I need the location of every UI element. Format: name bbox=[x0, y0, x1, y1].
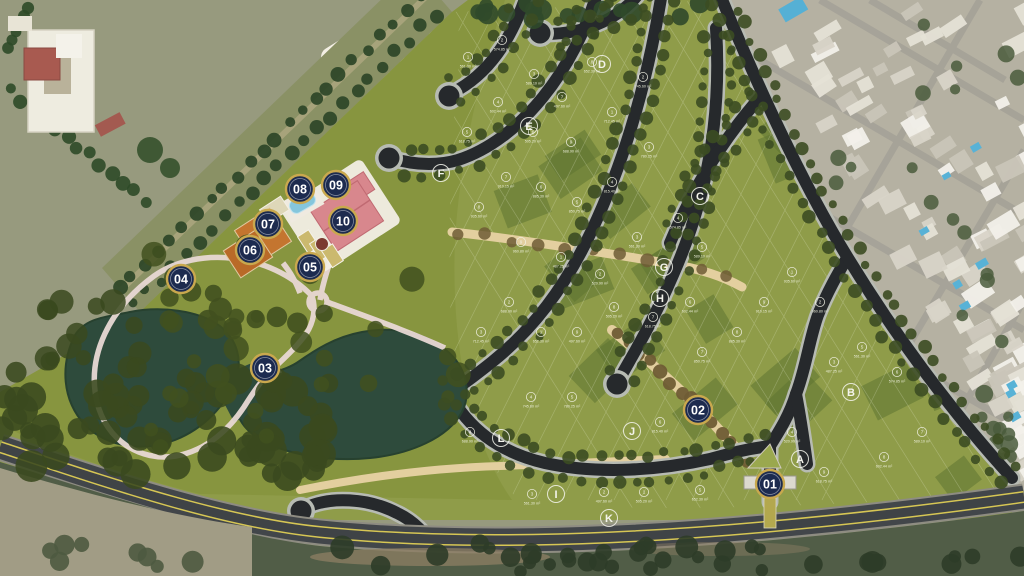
map-marker-07[interactable]: 07 bbox=[254, 210, 282, 238]
svg-text:3: 3 bbox=[833, 360, 836, 365]
svg-text:06: 06 bbox=[243, 244, 257, 258]
svg-text:4: 4 bbox=[497, 100, 500, 105]
map-marker-08[interactable]: 08 bbox=[286, 175, 314, 203]
svg-text:688.90 m²: 688.90 m² bbox=[462, 440, 479, 444]
svg-text:3: 3 bbox=[533, 72, 536, 77]
svg-text:03: 03 bbox=[258, 362, 272, 376]
svg-text:J: J bbox=[629, 426, 635, 438]
svg-text:520.90 m²: 520.90 m² bbox=[784, 440, 801, 444]
svg-text:1: 1 bbox=[643, 490, 646, 495]
svg-text:6: 6 bbox=[689, 300, 692, 305]
svg-text:505.20 m²: 505.20 m² bbox=[636, 500, 653, 504]
svg-text:487.25 m²: 487.25 m² bbox=[553, 265, 570, 269]
svg-text:01: 01 bbox=[763, 478, 777, 492]
svg-text:487.25 m²: 487.25 m² bbox=[826, 370, 843, 374]
svg-text:7: 7 bbox=[652, 315, 655, 320]
svg-text:850.75 m²: 850.75 m² bbox=[694, 360, 711, 364]
svg-text:935.60 m²: 935.60 m² bbox=[784, 280, 801, 284]
map-marker-04[interactable]: 04 bbox=[167, 265, 195, 293]
svg-text:1: 1 bbox=[791, 270, 794, 275]
svg-text:04: 04 bbox=[174, 273, 188, 287]
map-marker-06[interactable]: 06 bbox=[236, 236, 264, 264]
svg-text:885.30 m²: 885.30 m² bbox=[729, 340, 746, 344]
svg-text:2: 2 bbox=[819, 300, 822, 305]
svg-text:F: F bbox=[438, 168, 445, 180]
svg-text:7: 7 bbox=[505, 175, 508, 180]
svg-text:2: 2 bbox=[508, 300, 511, 305]
svg-text:561.30 m²: 561.30 m² bbox=[460, 65, 477, 69]
svg-text:602.44 m²: 602.44 m² bbox=[876, 465, 893, 469]
svg-text:5: 5 bbox=[466, 130, 469, 135]
svg-text:4: 4 bbox=[530, 395, 533, 400]
svg-text:D: D bbox=[598, 59, 606, 71]
svg-text:7: 7 bbox=[561, 95, 564, 100]
svg-text:6: 6 bbox=[540, 185, 543, 190]
map-marker-02[interactable]: 02 bbox=[684, 396, 712, 424]
svg-text:2: 2 bbox=[599, 272, 602, 277]
svg-text:935.60 m²: 935.60 m² bbox=[471, 215, 488, 219]
svg-text:8: 8 bbox=[478, 205, 481, 210]
svg-text:C: C bbox=[696, 191, 704, 203]
svg-text:618.75 m²: 618.75 m² bbox=[645, 325, 662, 329]
map-marker-05[interactable]: 05 bbox=[296, 253, 324, 281]
svg-text:910.15 m²: 910.15 m² bbox=[498, 185, 515, 189]
svg-text:688.90 m²: 688.90 m² bbox=[563, 150, 580, 154]
svg-text:960.80 m²: 960.80 m² bbox=[513, 250, 530, 254]
svg-text:960.80 m²: 960.80 m² bbox=[812, 310, 829, 314]
svg-text:05: 05 bbox=[303, 261, 317, 275]
svg-text:2: 2 bbox=[603, 490, 606, 495]
svg-text:3: 3 bbox=[531, 492, 534, 497]
svg-text:10: 10 bbox=[336, 215, 350, 229]
svg-text:589.10 m²: 589.10 m² bbox=[914, 440, 931, 444]
svg-text:5: 5 bbox=[699, 488, 702, 493]
svg-text:3: 3 bbox=[636, 235, 639, 240]
svg-text:9: 9 bbox=[570, 140, 573, 145]
svg-text:780.25 m²: 780.25 m² bbox=[641, 155, 658, 159]
svg-text:07: 07 bbox=[261, 218, 275, 232]
svg-text:589.10 m²: 589.10 m² bbox=[526, 82, 543, 86]
svg-text:497.60 m²: 497.60 m² bbox=[569, 340, 586, 344]
svg-text:3: 3 bbox=[480, 330, 483, 335]
svg-text:497.60 m²: 497.60 m² bbox=[554, 105, 571, 109]
svg-text:E: E bbox=[525, 121, 532, 133]
svg-text:712.45 m²: 712.45 m² bbox=[604, 120, 621, 124]
svg-text:7: 7 bbox=[921, 430, 924, 435]
svg-text:3: 3 bbox=[648, 145, 651, 150]
svg-text:1: 1 bbox=[560, 255, 563, 260]
svg-text:I: I bbox=[554, 489, 557, 501]
svg-text:08: 08 bbox=[293, 183, 307, 197]
svg-text:602.44 m²: 602.44 m² bbox=[682, 310, 699, 314]
svg-text:618.75 m²: 618.75 m² bbox=[459, 140, 476, 144]
svg-text:602.44 m²: 602.44 m² bbox=[490, 110, 507, 114]
svg-text:574.85 m²: 574.85 m² bbox=[889, 380, 906, 384]
svg-text:497.60 m²: 497.60 m² bbox=[596, 500, 613, 504]
svg-text:850.75 m²: 850.75 m² bbox=[569, 210, 586, 214]
svg-text:910.15 m²: 910.15 m² bbox=[756, 310, 773, 314]
svg-text:520.90 m²: 520.90 m² bbox=[592, 282, 609, 286]
svg-text:745.60 m²: 745.60 m² bbox=[523, 405, 540, 409]
map-marker-10[interactable]: 10 bbox=[329, 207, 357, 235]
svg-text:780.25 m²: 780.25 m² bbox=[564, 405, 581, 409]
svg-text:09: 09 bbox=[329, 179, 343, 193]
svg-text:505.20 m²: 505.20 m² bbox=[606, 315, 623, 319]
svg-text:4: 4 bbox=[469, 430, 472, 435]
svg-text:9: 9 bbox=[823, 470, 826, 475]
svg-text:574.85 m²: 574.85 m² bbox=[494, 48, 511, 52]
svg-text:4: 4 bbox=[611, 180, 614, 185]
svg-text:712.45 m²: 712.45 m² bbox=[473, 340, 490, 344]
svg-text:815.40 m²: 815.40 m² bbox=[652, 430, 669, 434]
svg-text:02: 02 bbox=[691, 404, 705, 418]
svg-text:A: A bbox=[796, 454, 804, 466]
svg-text:1: 1 bbox=[540, 330, 543, 335]
svg-text:745.60 m²: 745.60 m² bbox=[635, 85, 652, 89]
svg-text:5: 5 bbox=[861, 345, 864, 350]
svg-text:652.30 m²: 652.30 m² bbox=[692, 498, 709, 502]
svg-text:G: G bbox=[660, 262, 669, 274]
svg-text:6: 6 bbox=[659, 420, 662, 425]
svg-text:B: B bbox=[847, 387, 855, 399]
masterplan-canvas: 1561.30 m²2574.85 m²3589.10 m²4602.44 m²… bbox=[0, 0, 1024, 576]
svg-text:688.90 m²: 688.90 m² bbox=[501, 310, 518, 314]
svg-text:561.30 m²: 561.30 m² bbox=[524, 502, 541, 506]
svg-text:574.85 m²: 574.85 m² bbox=[670, 226, 687, 230]
site-plan-svg: 1561.30 m²2574.85 m²3589.10 m²4602.44 m²… bbox=[0, 0, 1024, 576]
svg-text:9: 9 bbox=[520, 240, 523, 245]
svg-text:K: K bbox=[605, 513, 613, 525]
svg-text:4: 4 bbox=[791, 430, 794, 435]
map-marker-03[interactable]: 03 bbox=[251, 354, 279, 382]
svg-text:4: 4 bbox=[677, 216, 680, 221]
svg-text:1: 1 bbox=[611, 110, 614, 115]
map-marker-01[interactable]: 01 bbox=[756, 470, 784, 498]
svg-text:L: L bbox=[498, 433, 505, 445]
svg-text:5: 5 bbox=[571, 395, 574, 400]
svg-text:8: 8 bbox=[736, 330, 739, 335]
svg-text:505.20 m²: 505.20 m² bbox=[525, 140, 542, 144]
svg-text:8: 8 bbox=[613, 305, 616, 310]
svg-text:9: 9 bbox=[763, 300, 766, 305]
svg-text:589.10 m²: 589.10 m² bbox=[694, 255, 711, 259]
svg-text:2: 2 bbox=[501, 38, 504, 43]
svg-text:H: H bbox=[656, 293, 664, 305]
svg-text:652.30 m²: 652.30 m² bbox=[533, 340, 550, 344]
svg-text:2: 2 bbox=[642, 75, 645, 80]
svg-text:5: 5 bbox=[701, 245, 704, 250]
svg-text:9: 9 bbox=[576, 330, 579, 335]
svg-text:1: 1 bbox=[467, 55, 470, 60]
svg-text:6: 6 bbox=[896, 370, 899, 375]
svg-text:7: 7 bbox=[701, 350, 704, 355]
map-marker-09[interactable]: 09 bbox=[322, 171, 350, 199]
svg-text:618.75 m²: 618.75 m² bbox=[816, 480, 833, 484]
svg-text:561.30 m²: 561.30 m² bbox=[629, 245, 646, 249]
svg-text:561.30 m²: 561.30 m² bbox=[854, 355, 871, 359]
svg-text:815.40 m²: 815.40 m² bbox=[604, 190, 621, 194]
svg-text:5: 5 bbox=[576, 200, 579, 205]
svg-text:885.30 m²: 885.30 m² bbox=[533, 195, 550, 199]
svg-text:8: 8 bbox=[883, 455, 886, 460]
